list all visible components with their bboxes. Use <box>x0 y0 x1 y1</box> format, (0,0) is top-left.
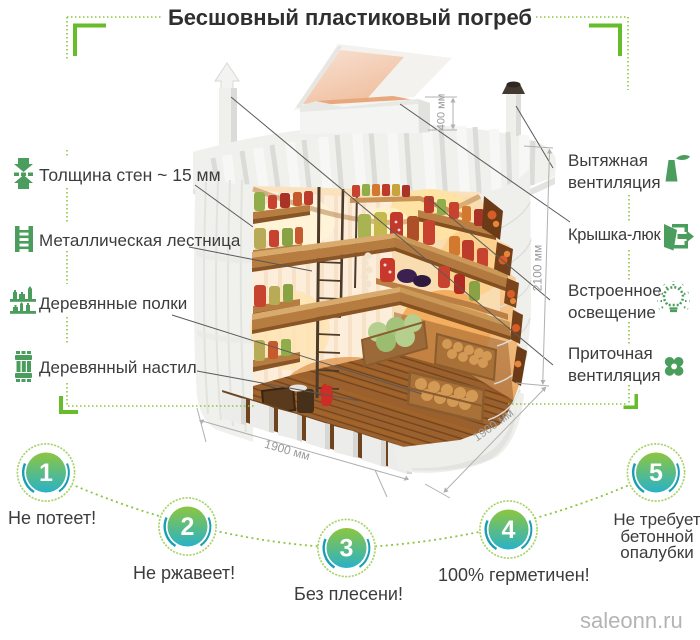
svg-text:1: 1 <box>39 459 53 487</box>
svg-text:2: 2 <box>181 513 195 541</box>
svg-text:4: 4 <box>502 516 516 544</box>
svg-text:3: 3 <box>340 535 354 563</box>
svg-text:5: 5 <box>649 459 663 487</box>
